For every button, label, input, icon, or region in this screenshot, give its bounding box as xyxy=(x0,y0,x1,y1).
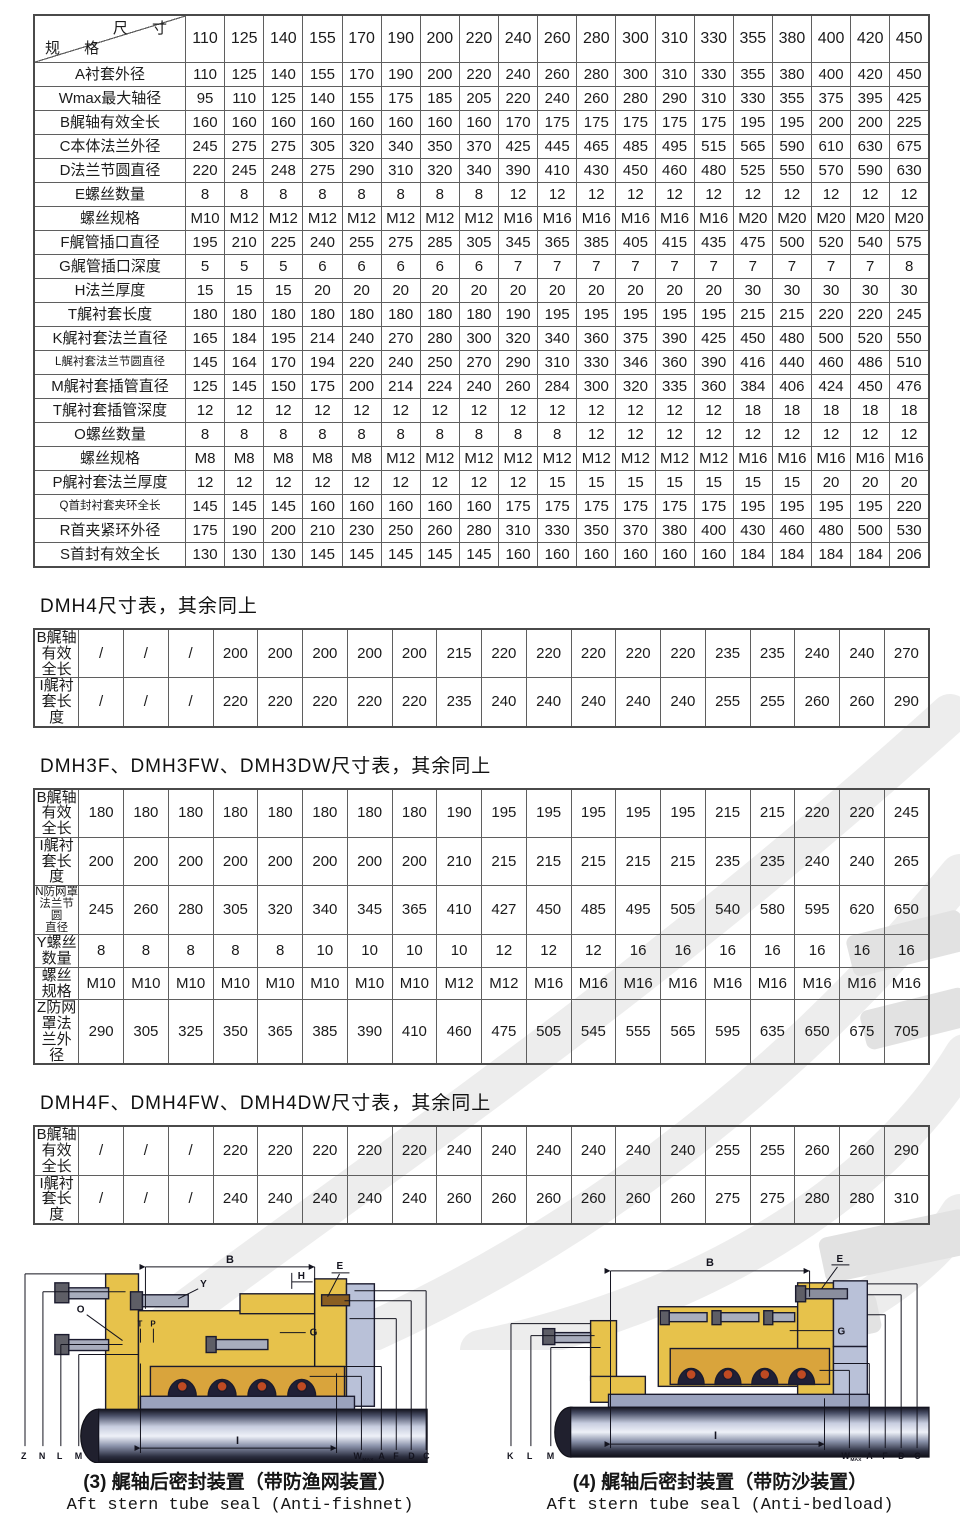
size-column-header: 420 xyxy=(851,15,890,63)
dimension-cell: 275 xyxy=(264,135,303,159)
dimension-cell: 170 xyxy=(342,63,381,87)
dim-label-f: F xyxy=(393,1451,399,1461)
dimension-cell: 18 xyxy=(772,399,811,423)
dimension-cell: 12 xyxy=(616,423,655,447)
dimension-cell: 8 xyxy=(213,935,258,968)
dimension-cell: 184 xyxy=(812,543,851,568)
row-label: G艉管插口深度 xyxy=(34,255,186,279)
figure3-caption-zh: (3) 艉轴后密封装置（带防渔网装置） xyxy=(0,1467,480,1494)
dimension-cell: 12 xyxy=(577,399,616,423)
dimension-cell: 20 xyxy=(890,471,929,495)
dimension-cell: 20 xyxy=(381,279,420,303)
dimension-cell: 220 xyxy=(812,303,851,327)
table-row: M艉衬套插管直径12514515017520021422424026028430… xyxy=(34,375,929,399)
dimension-cell: 195 xyxy=(772,111,811,135)
dimension-cell: 180 xyxy=(342,303,381,327)
size-column-header: 380 xyxy=(772,15,811,63)
dimension-cell: 245 xyxy=(890,303,929,327)
section-title-dmh4f: DMH4F、DMH4FW、DMH4DW尺寸表，其余同上 xyxy=(40,1088,960,1115)
dimension-cell: 235 xyxy=(750,837,795,885)
dimension-cell: 214 xyxy=(303,327,342,351)
dimension-cell: 520 xyxy=(812,231,851,255)
dimension-cell: M16 xyxy=(577,207,616,231)
dimension-cell: 180 xyxy=(258,789,303,838)
dimension-cell: M8 xyxy=(225,447,264,471)
dimension-cell: 245 xyxy=(225,159,264,183)
row-label: 螺丝规格 xyxy=(34,447,186,471)
dim-label-n: N xyxy=(39,1451,45,1461)
dimension-cell: 12 xyxy=(772,183,811,207)
dimension-cell: M10 xyxy=(258,967,303,1000)
dimension-cell: 275 xyxy=(381,231,420,255)
dimension-cell: M16 xyxy=(655,207,694,231)
dimension-cell: 200 xyxy=(392,629,437,678)
dimension-cell: 290 xyxy=(342,159,381,183)
dimension-cell: 195 xyxy=(482,789,527,838)
dimension-cell: 590 xyxy=(772,135,811,159)
dimension-cell: 220 xyxy=(795,789,840,838)
table-row: Q首封衬套夹环全长1451451451601601601601601751751… xyxy=(34,495,929,519)
dimension-cell: 130 xyxy=(225,543,264,568)
dimension-cell: 390 xyxy=(347,1000,392,1065)
dimension-cell: 340 xyxy=(538,327,577,351)
dimension-cell: 210 xyxy=(225,231,264,255)
dimension-cell: 290 xyxy=(655,87,694,111)
dimension-cell: 280 xyxy=(420,327,459,351)
dimension-cell: 425 xyxy=(499,135,538,159)
row-label: I艉衬套长度 xyxy=(34,1175,79,1224)
dimension-cell: 180 xyxy=(186,303,225,327)
dimension-cell: 270 xyxy=(381,327,420,351)
dimension-cell: 160 xyxy=(342,495,381,519)
dimension-cell: 20 xyxy=(499,279,538,303)
dimension-cell: 220 xyxy=(499,87,538,111)
table-row: P艉衬套法兰厚度12121212121212121215151515151515… xyxy=(34,471,929,495)
dimension-cell: 175 xyxy=(303,375,342,399)
dimension-cell: 10 xyxy=(303,935,348,968)
dimension-cell: 420 xyxy=(851,63,890,87)
dimension-cell: / xyxy=(168,629,213,678)
dimension-cell: 540 xyxy=(851,231,890,255)
dimension-cell: M16 xyxy=(772,447,811,471)
dimension-cell: 215 xyxy=(437,629,482,678)
dimension-cell: 290 xyxy=(79,1000,124,1065)
dimension-cell: 255 xyxy=(750,1126,795,1175)
table-row: R首夹紧环外径175190200210230250260280310330350… xyxy=(34,519,929,543)
dimension-cell: 220 xyxy=(186,159,225,183)
dimension-cell: 12 xyxy=(264,471,303,495)
dimension-cell: 15 xyxy=(538,471,577,495)
dimension-cell: 12 xyxy=(538,183,577,207)
dimension-cell: 200 xyxy=(851,111,890,135)
dimension-cell: 240 xyxy=(347,1175,392,1224)
dimension-cell: 495 xyxy=(616,886,661,935)
dimension-cell: 248 xyxy=(264,159,303,183)
dimension-cell: 570 xyxy=(812,159,851,183)
dimension-cell: 125 xyxy=(264,87,303,111)
dimension-cell: 7 xyxy=(851,255,890,279)
dimension-cell: 110 xyxy=(225,87,264,111)
dimension-cell: M10 xyxy=(168,967,213,1000)
dim-label-p: P xyxy=(150,1319,156,1328)
dimension-cell: 610 xyxy=(812,135,851,159)
table-row: B艉轴有效全长///220220220220220240240240240240… xyxy=(34,1126,929,1175)
dimension-cell: 245 xyxy=(186,135,225,159)
dimension-cell: 220 xyxy=(459,63,498,87)
dim-label-k: K xyxy=(507,1451,514,1461)
dimension-cell: 8 xyxy=(342,423,381,447)
dimension-cell: M20 xyxy=(890,207,929,231)
dimension-cell: 12 xyxy=(890,183,929,207)
dimension-cell: 160 xyxy=(381,111,420,135)
dimension-cell: 200 xyxy=(347,837,392,885)
dimension-cell: 355 xyxy=(772,87,811,111)
dimension-cell: 280 xyxy=(840,1175,885,1224)
dimension-cell: 205 xyxy=(459,87,498,111)
dimension-cell: 5 xyxy=(264,255,303,279)
dimension-cell: 12 xyxy=(812,183,851,207)
dimension-cell: 280 xyxy=(459,519,498,543)
dimension-cell: M16 xyxy=(812,447,851,471)
dimension-cell: 12 xyxy=(577,423,616,447)
dimension-cell: 235 xyxy=(705,837,750,885)
dimension-cell: 240 xyxy=(392,1175,437,1224)
dimension-cell: 320 xyxy=(420,159,459,183)
dimension-cell: 180 xyxy=(381,303,420,327)
dimension-cell: M12 xyxy=(381,447,420,471)
dimension-cell: 210 xyxy=(303,519,342,543)
dimension-cell: 195 xyxy=(616,789,661,838)
dimension-cell: 575 xyxy=(890,231,929,255)
dimension-cell: 365 xyxy=(538,231,577,255)
dimension-cell: 220 xyxy=(392,1126,437,1175)
dimension-cell: 8 xyxy=(186,423,225,447)
dimension-cell: M10 xyxy=(347,967,392,1000)
dimension-cell: 20 xyxy=(655,279,694,303)
dimension-cell: 220 xyxy=(661,629,706,678)
dimension-cell: 215 xyxy=(526,837,571,885)
dimension-cell: 260 xyxy=(795,1126,840,1175)
table-row: Y螺丝数量888881010101012121216161616161616 xyxy=(34,935,929,968)
dimension-cell: 310 xyxy=(655,63,694,87)
dimension-cell: / xyxy=(79,1126,124,1175)
dimension-cell: 365 xyxy=(392,886,437,935)
dimension-cell: M12 xyxy=(577,447,616,471)
dimension-cell: 310 xyxy=(694,87,733,111)
dim-label-a: A xyxy=(378,1451,385,1461)
dimension-cell: 310 xyxy=(538,351,577,375)
dimension-cell: M8 xyxy=(264,447,303,471)
row-label: L艉衬套法兰节圆直径 xyxy=(34,351,186,375)
dimension-cell: 424 xyxy=(812,375,851,399)
dimension-cell: 300 xyxy=(616,63,655,87)
dimension-cell: 160 xyxy=(577,543,616,568)
dimension-cell: M12 xyxy=(655,447,694,471)
dimension-cell: 240 xyxy=(616,1126,661,1175)
dimension-cell: 195 xyxy=(694,303,733,327)
dimension-cell: M16 xyxy=(616,207,655,231)
dim-label-m: M xyxy=(547,1451,554,1461)
dimension-cell: 7 xyxy=(772,255,811,279)
dimension-cell: M20 xyxy=(851,207,890,231)
dimension-cell: 18 xyxy=(890,399,929,423)
dimension-cell: 185 xyxy=(420,87,459,111)
dimension-cell: M10 xyxy=(186,207,225,231)
dim-label-i: I xyxy=(714,1430,717,1442)
dimension-cell: 260 xyxy=(526,1175,571,1224)
dimension-cell: 16 xyxy=(661,935,706,968)
dimension-cell: 280 xyxy=(168,886,213,935)
dimension-cell: 215 xyxy=(571,837,616,885)
dimension-cell: 224 xyxy=(420,375,459,399)
dimension-cell: 220 xyxy=(213,1126,258,1175)
dimension-cell: 30 xyxy=(890,279,929,303)
dimension-cell: 195 xyxy=(571,789,616,838)
dimension-cell: 635 xyxy=(750,1000,795,1065)
dimension-cell: 485 xyxy=(571,886,616,935)
dimension-cell: M12 xyxy=(538,447,577,471)
dimension-cell: 380 xyxy=(772,63,811,87)
row-label: M艉衬套插管直径 xyxy=(34,375,186,399)
dimension-cell: 555 xyxy=(616,1000,661,1065)
dimension-cell: 12 xyxy=(499,183,538,207)
dimension-cell: 200 xyxy=(812,111,851,135)
dimension-cell: 206 xyxy=(890,543,929,568)
dimension-cell: 15 xyxy=(577,471,616,495)
dimension-cell: 175 xyxy=(538,495,577,519)
dimension-cell: 405 xyxy=(616,231,655,255)
dimension-cell: 145 xyxy=(420,543,459,568)
dimension-cell: 270 xyxy=(884,629,929,678)
dimension-cell: 5 xyxy=(186,255,225,279)
dimension-cell: 460 xyxy=(772,519,811,543)
dimension-cell: 170 xyxy=(499,111,538,135)
dimension-cell: 450 xyxy=(890,63,929,87)
dimension-cell: 195 xyxy=(812,495,851,519)
row-label: 螺丝规格 xyxy=(34,967,79,1000)
dimension-cell: 12 xyxy=(499,471,538,495)
dimension-cell: 220 xyxy=(526,629,571,678)
dimension-cell: 145 xyxy=(264,495,303,519)
dimension-cell: 8 xyxy=(342,183,381,207)
dimension-cell: M16 xyxy=(750,967,795,1000)
dimension-cell: M16 xyxy=(661,967,706,1000)
dimension-cell: 220 xyxy=(571,629,616,678)
dimension-cell: 30 xyxy=(812,279,851,303)
dimension-cell: 180 xyxy=(213,789,258,838)
dimension-cell: M20 xyxy=(772,207,811,231)
dimension-cell: 175 xyxy=(577,495,616,519)
dimension-cell: 505 xyxy=(526,1000,571,1065)
dimension-cell: 240 xyxy=(303,231,342,255)
dimension-cell: 240 xyxy=(538,87,577,111)
dimension-cell: M10 xyxy=(124,967,169,1000)
dimension-cell: 125 xyxy=(225,63,264,87)
dimension-cell: 225 xyxy=(264,231,303,255)
dimension-cell: 8 xyxy=(890,255,929,279)
dimension-cell: 15 xyxy=(264,279,303,303)
dimension-cell: 12 xyxy=(616,399,655,423)
dim-label-b: B xyxy=(706,1257,714,1269)
dimension-cell: 160 xyxy=(303,495,342,519)
dimension-cell: M16 xyxy=(840,967,885,1000)
dimension-cell: 16 xyxy=(750,935,795,968)
dimension-cell: 220 xyxy=(347,1126,392,1175)
dimension-cell: 260 xyxy=(124,886,169,935)
dimension-cell: 12 xyxy=(694,423,733,447)
dimension-cell: 30 xyxy=(851,279,890,303)
table-row: G艉管插口深度5556666677777777778 xyxy=(34,255,929,279)
row-label: R首夹紧环外径 xyxy=(34,519,186,543)
size-column-header: 260 xyxy=(538,15,577,63)
dimension-cell: 195 xyxy=(772,495,811,519)
size-column-header: 310 xyxy=(655,15,694,63)
table-row: Wmax最大轴径95110125140155175185205220240260… xyxy=(34,87,929,111)
dimension-cell: 245 xyxy=(79,886,124,935)
dimension-cell: 565 xyxy=(733,135,772,159)
dimension-cell: 260 xyxy=(437,1175,482,1224)
dimension-cell: 450 xyxy=(733,327,772,351)
dimension-cell: 290 xyxy=(884,678,929,727)
size-column-header: 170 xyxy=(342,15,381,63)
dimension-cell: 15 xyxy=(225,279,264,303)
dimension-cell: 175 xyxy=(577,111,616,135)
dimension-cell: 6 xyxy=(381,255,420,279)
dimension-cell: 175 xyxy=(186,519,225,543)
dimension-cell: 12 xyxy=(303,471,342,495)
dimension-cell: 7 xyxy=(616,255,655,279)
dimension-cell: M16 xyxy=(705,967,750,1000)
dimension-cell: 15 xyxy=(655,471,694,495)
dimension-cell: 20 xyxy=(459,279,498,303)
size-column-header: 190 xyxy=(381,15,420,63)
row-label: B艉轴有效全长 xyxy=(34,629,79,678)
dimension-cell: 150 xyxy=(264,375,303,399)
dimension-cell: 390 xyxy=(655,327,694,351)
dimension-cell: 12 xyxy=(526,935,571,968)
dmh4f-table: B艉轴有效全长///220220220220220240240240240240… xyxy=(33,1125,930,1225)
dimension-cell: M10 xyxy=(79,967,124,1000)
dim-label-g: G xyxy=(310,1327,318,1338)
dimension-cell: 365 xyxy=(258,1000,303,1065)
dimension-cell: 155 xyxy=(342,87,381,111)
dimension-cell: 240 xyxy=(381,351,420,375)
dimension-cell: 220 xyxy=(347,678,392,727)
dimension-cell: 16 xyxy=(795,935,840,968)
dimension-cell: 12 xyxy=(571,935,616,968)
row-label: P艉衬套法兰厚度 xyxy=(34,471,186,495)
dim-label-c: C xyxy=(914,1451,921,1461)
dimension-cell: 7 xyxy=(655,255,694,279)
dimension-cell: 160 xyxy=(459,111,498,135)
dimension-cell: 675 xyxy=(840,1000,885,1065)
dimension-cell: 195 xyxy=(733,111,772,135)
dimension-cell: M20 xyxy=(733,207,772,231)
table-row: I艉衬套长度///2402402402402402602602602602602… xyxy=(34,1175,929,1224)
dimension-cell: 385 xyxy=(303,1000,348,1065)
figure-anti-bedload: B E G I K L M W MAX A F D C (4) 艉轴后密封装置（… xyxy=(480,1249,960,1515)
dimension-cell: 280 xyxy=(616,87,655,111)
dimension-cell: 330 xyxy=(694,63,733,87)
dimension-cell: 430 xyxy=(733,519,772,543)
dimension-cell: 400 xyxy=(694,519,733,543)
row-label: E螺丝数量 xyxy=(34,183,186,207)
dimension-cell: 220 xyxy=(342,351,381,375)
dimension-cell: 375 xyxy=(812,87,851,111)
dimension-cell: 240 xyxy=(526,1126,571,1175)
dimension-cell: 160 xyxy=(420,495,459,519)
dimension-cell: 8 xyxy=(264,423,303,447)
dimension-cell: M12 xyxy=(459,207,498,231)
dimension-cell: 540 xyxy=(705,886,750,935)
dimension-cell: 8 xyxy=(499,423,538,447)
dimension-cell: 450 xyxy=(526,886,571,935)
dim-label-t: T xyxy=(137,1319,142,1328)
dimension-cell: 175 xyxy=(655,111,694,135)
dimension-cell: 210 xyxy=(437,837,482,885)
dimension-cell: 20 xyxy=(342,279,381,303)
dimension-cell: 145 xyxy=(225,495,264,519)
dim-label-e: E xyxy=(836,1254,843,1265)
dimension-cell: 180 xyxy=(168,789,213,838)
table-row: N防网罩法兰节圆 直径24526028030532034034536541042… xyxy=(34,886,929,935)
dimension-cell: 416 xyxy=(733,351,772,375)
dimension-cell: 410 xyxy=(392,1000,437,1065)
dimension-cell: 650 xyxy=(884,886,929,935)
dimension-cell: 160 xyxy=(420,111,459,135)
dimension-cell: 200 xyxy=(342,375,381,399)
dimension-cell: 6 xyxy=(459,255,498,279)
dimension-cell: 195 xyxy=(616,303,655,327)
dimension-cell: 8 xyxy=(186,183,225,207)
row-label: B艉轴有效全长 xyxy=(34,111,186,135)
dimension-cell: 595 xyxy=(705,1000,750,1065)
dim-label-c: C xyxy=(423,1451,430,1461)
dimension-cell: 12 xyxy=(694,399,733,423)
dimension-cell: 15 xyxy=(694,471,733,495)
corner-label-spec: 规 格 xyxy=(45,41,109,57)
dimension-cell: 20 xyxy=(538,279,577,303)
dimension-cell: M16 xyxy=(884,967,929,1000)
dimension-cell: 485 xyxy=(616,135,655,159)
dimension-cell: 435 xyxy=(694,231,733,255)
dimension-cell: 310 xyxy=(499,519,538,543)
dimension-cell: 145 xyxy=(186,495,225,519)
dimension-cell: / xyxy=(124,1175,169,1224)
dimension-cell: 275 xyxy=(225,135,264,159)
dimension-cell: 175 xyxy=(381,87,420,111)
dimension-cell: 215 xyxy=(750,789,795,838)
dimension-cell: M8 xyxy=(303,447,342,471)
dimension-cell: M16 xyxy=(795,967,840,1000)
dimension-cell: 460 xyxy=(812,351,851,375)
dimension-cell: M12 xyxy=(459,447,498,471)
dimension-cell: 250 xyxy=(420,351,459,375)
row-label: D法兰节圆直径 xyxy=(34,159,186,183)
dimension-cell: 215 xyxy=(661,837,706,885)
dimension-cell: 360 xyxy=(577,327,616,351)
dimension-cell: M12 xyxy=(225,207,264,231)
dimension-cell: 650 xyxy=(795,1000,840,1065)
size-column-header: 330 xyxy=(694,15,733,63)
dimension-cell: 215 xyxy=(616,837,661,885)
dimension-cell: 12 xyxy=(186,471,225,495)
figure4-caption-zh: (4) 艉轴后密封装置（带防沙装置） xyxy=(480,1467,960,1494)
dimension-cell: 180 xyxy=(392,789,437,838)
dimension-cell: 10 xyxy=(437,935,482,968)
dimension-cell: 550 xyxy=(772,159,811,183)
dimension-cell: 275 xyxy=(303,159,342,183)
